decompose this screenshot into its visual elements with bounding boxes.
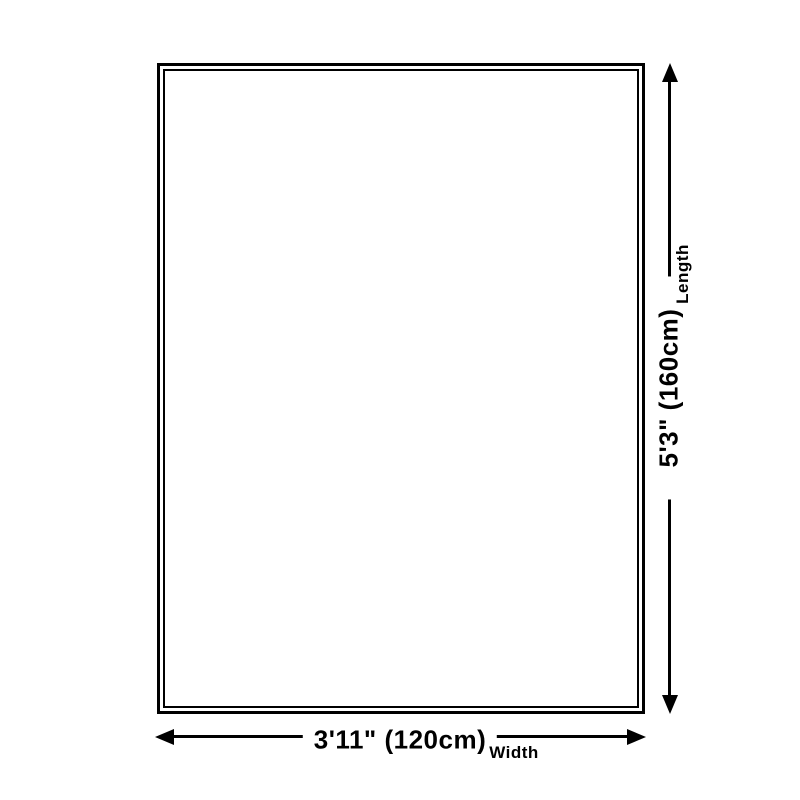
width-label: Width: [489, 743, 539, 763]
width-value: 3'11" (120cm): [303, 725, 497, 756]
arrow-left-icon: [155, 729, 174, 745]
arrow-right-icon: [627, 729, 646, 745]
rug-inner-outline: [163, 69, 639, 708]
size-diagram: 5'3" (160cm) Length 3'11" (120cm) Width: [0, 0, 800, 800]
arrow-down-icon: [662, 695, 678, 714]
arrow-up-icon: [662, 63, 678, 82]
rug-outline: [157, 63, 645, 714]
length-label: Length: [673, 244, 693, 304]
length-value: 5'3" (160cm): [654, 277, 685, 500]
